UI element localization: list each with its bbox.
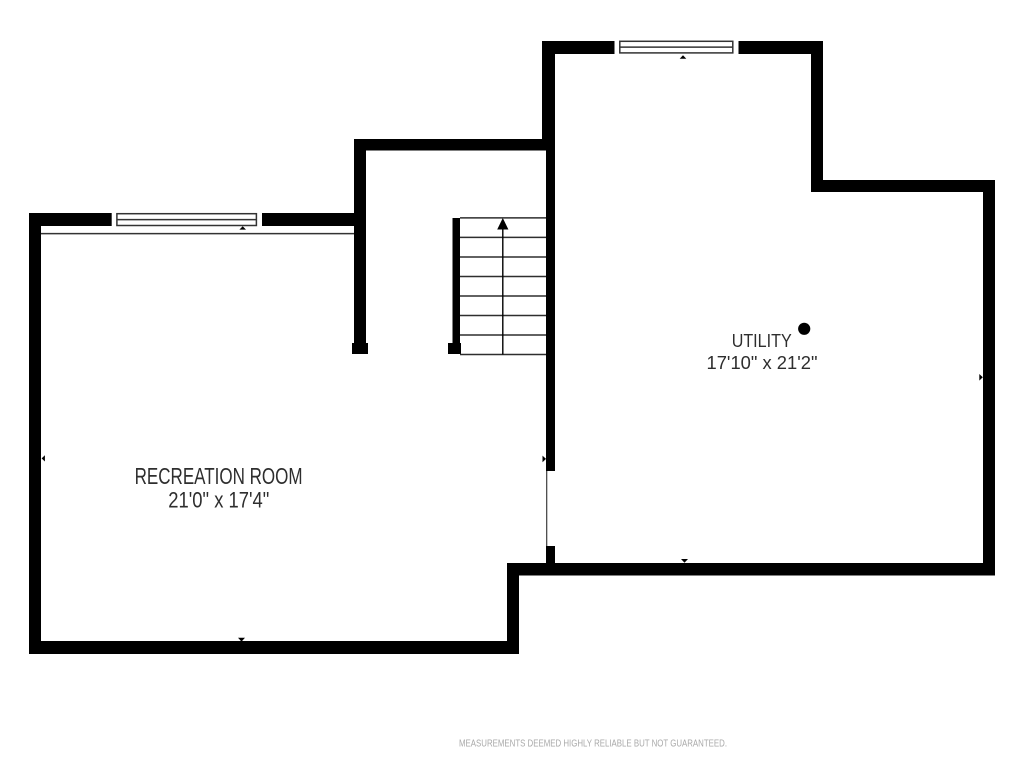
svg-text:21'0" x 17'4": 21'0" x 17'4" — [168, 487, 269, 512]
svg-text:RECREATION ROOM: RECREATION ROOM — [135, 463, 303, 489]
svg-text:MEASUREMENTS DEEMED HIGHLY REL: MEASUREMENTS DEEMED HIGHLY RELIABLE BUT … — [459, 737, 727, 749]
svg-text:17'10" x 21'2": 17'10" x 21'2" — [707, 352, 818, 373]
svg-text:UTILITY: UTILITY — [732, 330, 792, 351]
